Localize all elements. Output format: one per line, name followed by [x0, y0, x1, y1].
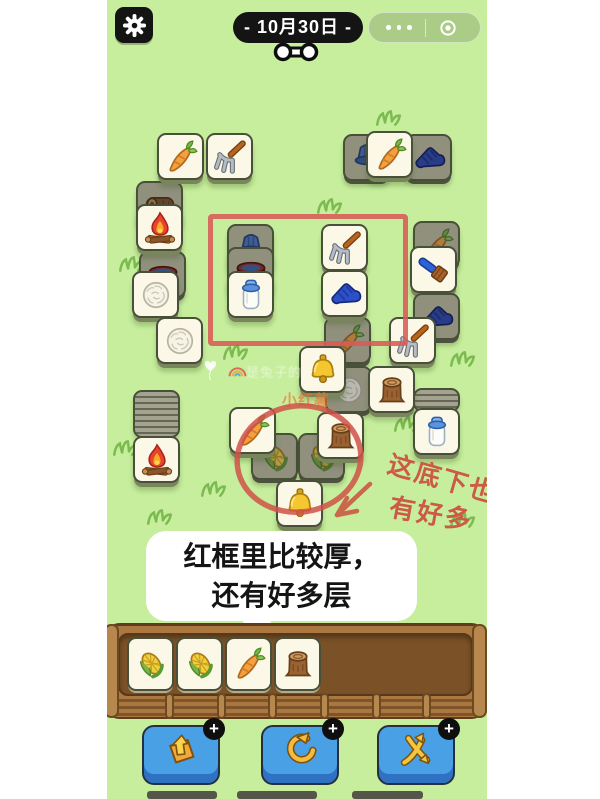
stump-icon [279, 645, 317, 683]
tray-tile-stump [274, 637, 321, 691]
fence-peg [422, 693, 431, 719]
remove-three-button[interactable]: + [142, 725, 220, 785]
tile-bell[interactable] [276, 480, 323, 527]
stump-icon [373, 371, 411, 409]
tray-tiles [127, 637, 321, 691]
carrot-icon [162, 138, 200, 176]
bottom-bar-fragment [237, 791, 317, 799]
fence-peg [320, 693, 329, 719]
grass-tuft [449, 351, 476, 367]
grass-icon [146, 509, 173, 525]
bottom-bar-fragment [147, 791, 217, 799]
fence-post-left [107, 624, 119, 718]
plus-badge[interactable]: + [438, 718, 460, 740]
comment-bubble: 红框里比较厚， 还有好多层 [146, 531, 417, 621]
fork-icon [211, 138, 249, 176]
fire-icon [141, 209, 179, 247]
tray-tile-carrot [225, 637, 272, 691]
more-icon[interactable] [386, 25, 412, 30]
grass-icon [316, 198, 343, 214]
corn-icon [132, 645, 170, 683]
undo-arrow-icon [280, 730, 320, 770]
watermark-name: 是兔子的 [246, 362, 302, 381]
grass-tuft [316, 198, 343, 214]
undo-button[interactable]: + [261, 725, 339, 785]
heart-balloon-icon [202, 358, 219, 385]
collection-tray [107, 623, 487, 719]
grass-icon [200, 481, 227, 497]
carrot-icon [230, 645, 268, 683]
grass-icon [375, 110, 402, 126]
tile-milk[interactable] [413, 408, 460, 455]
shuffle-button[interactable]: + [377, 725, 455, 785]
tile-wool[interactable] [132, 271, 179, 318]
bell-icon [304, 351, 342, 389]
bubble-line2: 还有好多层 [211, 576, 351, 615]
milk-icon [418, 413, 456, 451]
carrot-icon [234, 412, 272, 450]
plus-badge[interactable]: + [203, 718, 225, 740]
bubble-line1: 红框里比较厚， [183, 537, 379, 576]
grass-icon [449, 351, 476, 367]
glove-icon [410, 139, 448, 177]
capsule-divider [425, 19, 426, 37]
tile-fire[interactable] [136, 204, 183, 251]
tile-carrot[interactable] [229, 407, 276, 454]
fire-icon [138, 441, 176, 479]
grass-tuft [200, 481, 227, 497]
settings-button[interactable] [115, 7, 153, 43]
tile-stump[interactable] [317, 412, 364, 459]
gear-icon [121, 12, 148, 39]
screenshot-page: - 10月30日 - 是兔子的 小红薯 这底下也还 有好多 红框里比较厚， [0, 0, 600, 799]
wool-icon [161, 322, 199, 360]
wool-icon [137, 276, 175, 314]
level-date-pill: - 10月30日 - [233, 12, 363, 43]
tile-carrot[interactable] [366, 131, 413, 178]
fence-peg [268, 693, 277, 719]
stump-icon [322, 417, 360, 455]
grass-icon [222, 344, 249, 360]
dumbbell-icon [272, 41, 320, 63]
bell-icon [281, 485, 319, 523]
record-circle-icon[interactable] [438, 18, 458, 38]
corn-icon [181, 645, 219, 683]
tile-bell[interactable] [299, 346, 346, 393]
carrot-icon [371, 136, 409, 174]
tile-carrot[interactable] [157, 133, 204, 180]
tray-tile-corn [127, 637, 174, 691]
rainbow-icon [227, 364, 248, 378]
game-screen: - 10月30日 - 是兔子的 小红薯 这底下也还 有好多 红框里比较厚， [107, 0, 487, 799]
grass-tuft [146, 509, 173, 525]
tile-stump[interactable] [368, 366, 415, 413]
fence-peg [217, 693, 226, 719]
tile-fork[interactable] [206, 133, 253, 180]
plus-badge[interactable]: + [322, 718, 344, 740]
shuffle-arrows-icon [396, 730, 436, 770]
tile-brush[interactable] [410, 246, 457, 293]
miniprogram-capsule [368, 12, 481, 43]
tray-tile-corn [176, 637, 223, 691]
tile-stack[interactable] [133, 390, 180, 438]
bottom-bar-fragment [352, 791, 423, 799]
grass-tuft [375, 110, 402, 126]
bag-out-icon [161, 730, 201, 770]
grass-tuft [222, 344, 249, 360]
tile-fire[interactable] [133, 436, 180, 483]
annotation-red-box [208, 214, 408, 346]
tile-wool[interactable] [156, 317, 203, 364]
fence-peg [372, 693, 381, 719]
fence-peg [165, 693, 174, 719]
brush-icon [415, 251, 453, 289]
fence-post-right [472, 624, 487, 718]
